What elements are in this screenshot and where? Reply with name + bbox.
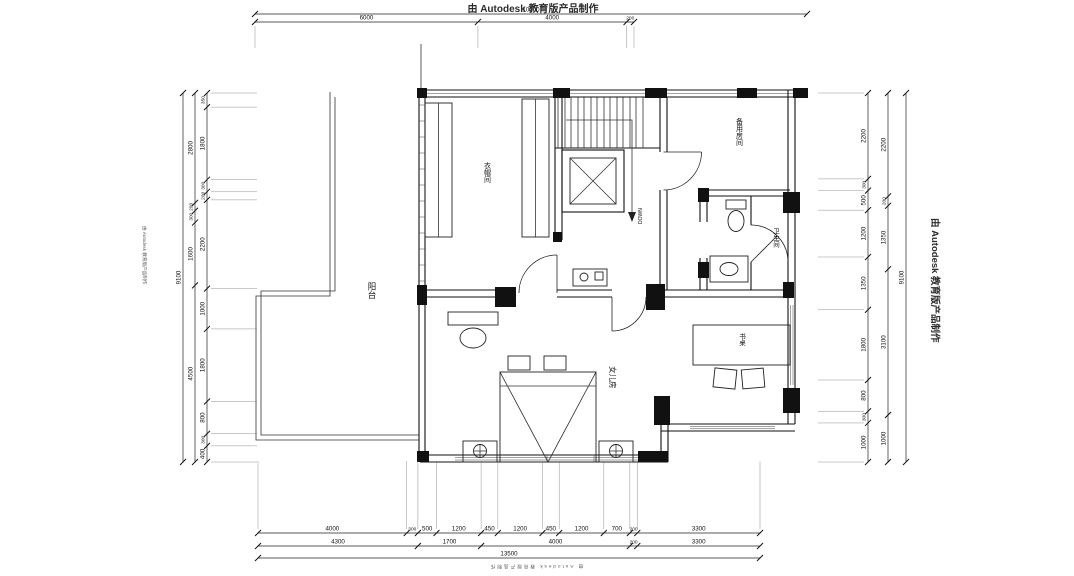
elevator (562, 150, 624, 212)
dim-label: 300 (862, 413, 868, 421)
dim-label: 1200 (452, 526, 466, 533)
dim-bottom-row1: 40003005001200450120045012007002003300 (255, 461, 763, 536)
dim-label: 4000 (325, 526, 339, 533)
staircase: DOWN (558, 98, 644, 225)
spare-room-door (664, 152, 702, 190)
dim-label: 450 (546, 526, 557, 533)
dim-label: 400 (200, 448, 207, 459)
dim-label: 2200 (200, 237, 207, 251)
dim-left-inner: 3501800300200220010001800800300400 (200, 90, 258, 465)
dim-label: 1200 (575, 526, 589, 533)
dim-label: 450 (484, 526, 495, 533)
dim-label: 3100 (881, 335, 888, 349)
bedroom-door (612, 297, 646, 331)
dim-label: 4500 (188, 366, 195, 380)
dim-label: 1800 (200, 136, 207, 150)
dim-label: 200 (189, 203, 195, 211)
dim-bottom-row2: 4300170040002003300 (255, 539, 763, 550)
dim-bottom-total: 13500 (255, 551, 763, 562)
dim-label: 200 (882, 197, 888, 205)
stair-down-label: DOWN (638, 208, 644, 224)
dim-left-total: 9100 (176, 90, 187, 465)
dim-label: 300 (862, 180, 868, 188)
cloakroom: 衣帽间 (425, 99, 549, 237)
dim-label: 9100 (176, 270, 183, 284)
exterior-walls (419, 44, 808, 462)
dim-label: 300 (201, 435, 207, 443)
room-label-desk: 书桌 (738, 332, 746, 348)
dim-label: 1800 (861, 337, 868, 351)
dim-label: 3300 (692, 539, 706, 546)
stair-direction-arrow (566, 120, 632, 214)
dim-label: 6000 (360, 15, 374, 22)
dim-label: 1000 (200, 301, 207, 315)
dim-right-total: 9100 (899, 90, 910, 465)
dim-label: 200 (630, 540, 638, 546)
room-label-cloakroom: 衣帽间 (484, 161, 492, 184)
dim-label: 200 (201, 192, 207, 200)
dim-label: 4300 (331, 539, 345, 546)
dim-label: 200 (626, 16, 634, 22)
dim-label: 300 (408, 527, 416, 533)
dim-label: 4000 (545, 15, 559, 22)
watermark-left: 由 Autodesk 教育版产品制作 (141, 226, 148, 285)
dim-label: 1200 (513, 526, 527, 533)
dim-label: 2200 (881, 137, 888, 151)
spare-room: 备用房间 (736, 117, 744, 147)
dim-label: 700 (612, 526, 623, 533)
daughter-room: 书桌 女儿房 (448, 312, 790, 462)
dim-label: 1600 (188, 247, 195, 261)
bathroom: 卫生间 (710, 200, 780, 282)
balcony: 阳台 (256, 92, 419, 440)
dim-label: 2800 (188, 141, 195, 155)
watermark-top: 由 Autodesk 教育版产品制作 (467, 2, 598, 15)
dim-label: 1350 (881, 230, 888, 244)
floor-plan-canvas: 阳台 衣帽间 DOWN (0, 0, 1074, 576)
dim-right-mid: 2200200135031001000 (881, 90, 892, 465)
dim-label: 1000 (881, 431, 888, 445)
dim-label: 13500 (500, 551, 518, 558)
dim-label: 300 (201, 181, 207, 189)
dim-label: 1200 (861, 226, 868, 240)
dim-label: 1800 (200, 358, 207, 372)
dim-label: 800 (200, 412, 207, 423)
cad-floor-plan-page: 阳台 衣帽间 DOWN (0, 0, 1074, 576)
dim-label: 500 (861, 195, 868, 206)
room-label-bathroom: 卫生间 (772, 228, 780, 249)
stair-arrow-head (628, 212, 636, 222)
dim-label: 800 (861, 390, 868, 401)
cloakroom-door (519, 255, 557, 293)
dim-label: 1700 (443, 539, 457, 546)
dim-label: 500 (422, 526, 433, 533)
dim-top-row: 60004000200 (252, 15, 637, 49)
dim-label: 3300 (692, 526, 706, 533)
dim-label: 350 (201, 96, 207, 104)
dim-label: 9100 (899, 270, 906, 284)
hall-console (573, 269, 607, 286)
structural-columns (417, 88, 808, 462)
bathroom-door (751, 225, 788, 262)
room-label-balcony: 阳台 (367, 282, 377, 300)
watermark-bottom: 由 Autodesk 教育版产品制作 (489, 563, 583, 570)
dim-label: 300 (189, 212, 195, 220)
dim-label: 4000 (549, 539, 563, 546)
dim-left-mid: 280020030016004500 (188, 90, 199, 465)
dim-right-inner: 22003005001200135018008003001000 (818, 90, 871, 465)
room-label-spare: 备用房间 (736, 117, 744, 147)
room-label-daughter: 女儿房 (608, 366, 618, 389)
dim-label: 2200 (861, 129, 868, 143)
dim-label: 1000 (861, 435, 868, 449)
watermark-right: 由 Autodesk 教育版产品制作 (929, 218, 941, 343)
dim-label: 1350 (861, 276, 868, 290)
dim-label: 200 (630, 527, 638, 533)
